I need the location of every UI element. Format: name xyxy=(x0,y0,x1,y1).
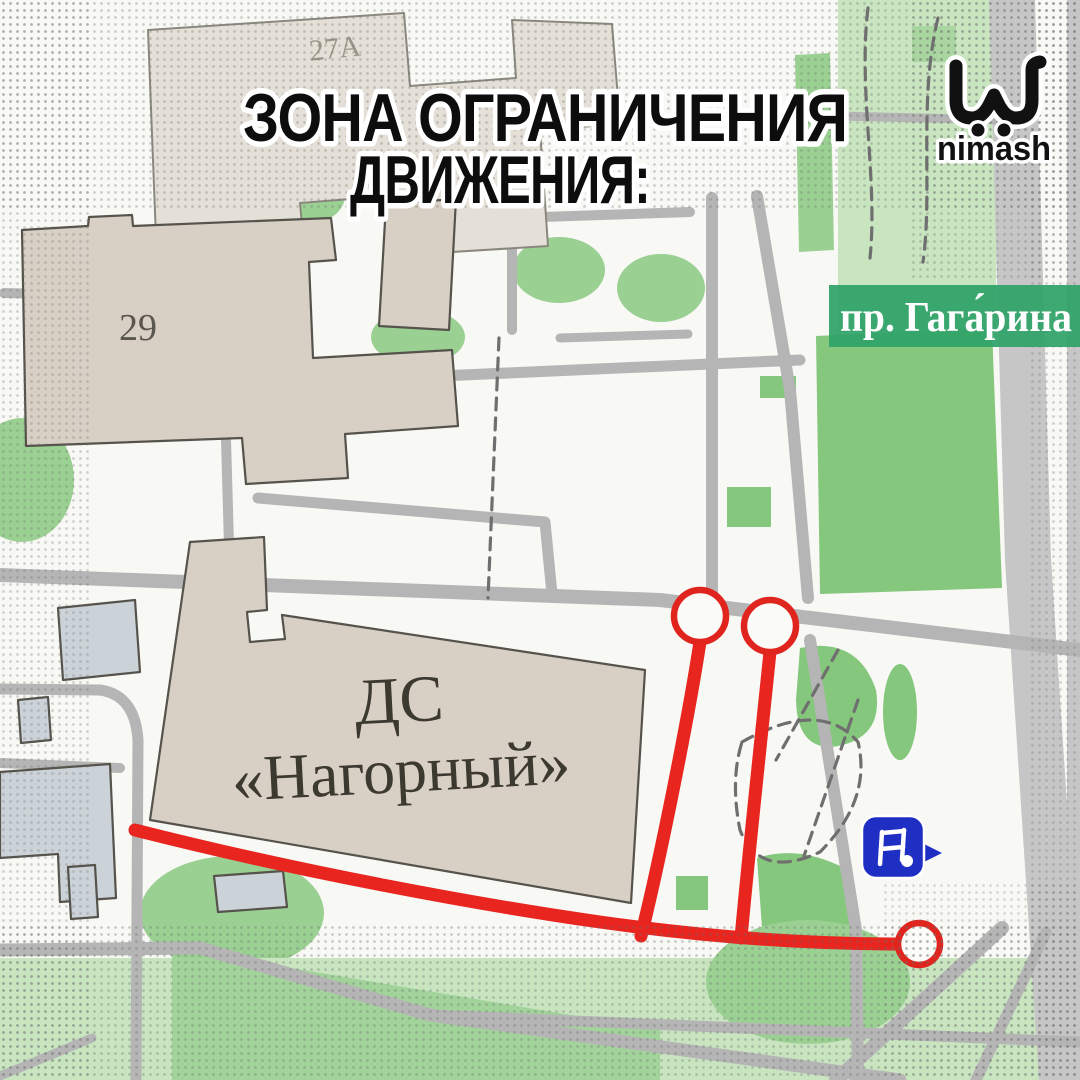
building-slab xyxy=(214,871,287,912)
street-banner: пр. Гага́рина xyxy=(829,285,1080,347)
restriction-map: 27А 29 ДС «Нагорный» пр. Гага́рина xyxy=(0,0,1080,1080)
post-canvas: 27А 29 ДС «Нагорный» пр. Гага́рина xyxy=(0,0,1080,1080)
street-banner-label: пр. Гага́рина xyxy=(840,293,1072,341)
post-title-line2: ДВИЖЕНИЯ: xyxy=(350,142,650,218)
nimash-logo-text: nimash xyxy=(937,130,1051,168)
building-29-label: 29 xyxy=(119,307,157,349)
route-endpoint-circle-1 xyxy=(674,590,726,642)
route-endpoint-circle-2 xyxy=(744,600,796,652)
building-small xyxy=(379,199,456,330)
venue-label-line1: ДС xyxy=(353,662,446,740)
